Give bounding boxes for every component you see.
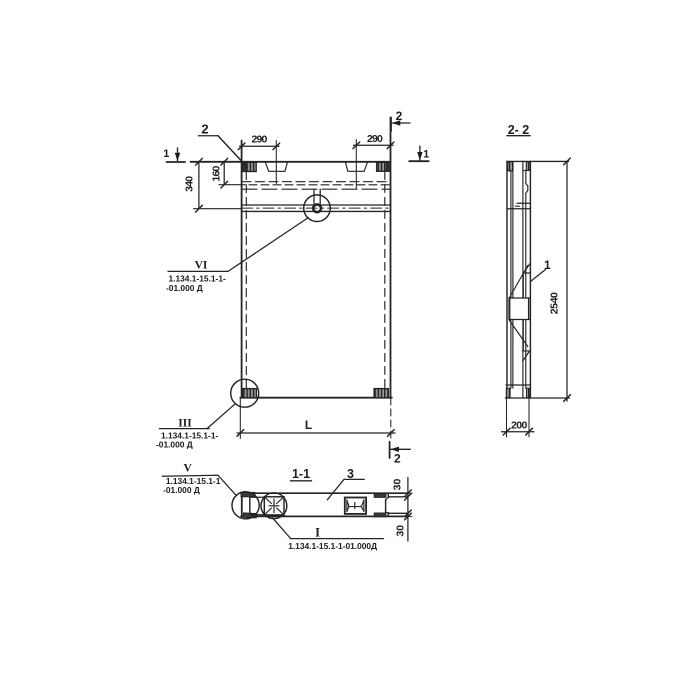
- svg-text:2: 2: [396, 109, 403, 123]
- svg-text:3: 3: [347, 467, 354, 481]
- svg-text:VI: VI: [195, 260, 208, 272]
- svg-text:-01.000 Д: -01.000 Д: [156, 440, 193, 450]
- svg-text:290: 290: [251, 134, 267, 146]
- svg-text:L: L: [305, 418, 312, 432]
- svg-text:2540: 2540: [549, 292, 561, 314]
- svg-text:2- 2: 2- 2: [508, 123, 530, 137]
- svg-text:1: 1: [544, 258, 551, 272]
- svg-text:III: III: [178, 417, 192, 429]
- svg-text:I: I: [315, 525, 320, 539]
- svg-text:V: V: [183, 463, 192, 475]
- svg-text:-01.000 Д: -01.000 Д: [166, 283, 203, 293]
- svg-text:30: 30: [395, 525, 407, 537]
- svg-text:30: 30: [392, 479, 404, 491]
- svg-text:1-1: 1-1: [292, 467, 310, 481]
- svg-text:2: 2: [201, 122, 208, 137]
- svg-text:290: 290: [367, 133, 383, 145]
- svg-text:340: 340: [184, 176, 196, 192]
- svg-text:1: 1: [163, 148, 169, 160]
- svg-text:200: 200: [511, 419, 527, 431]
- svg-text:1.134.1-15.1-1-01.000Д: 1.134.1-15.1-1-01.000Д: [288, 541, 377, 551]
- svg-text:-01.000 Д: -01.000 Д: [163, 485, 200, 495]
- svg-text:2: 2: [394, 451, 401, 465]
- svg-text:160: 160: [211, 165, 223, 181]
- svg-text:1: 1: [423, 149, 429, 161]
